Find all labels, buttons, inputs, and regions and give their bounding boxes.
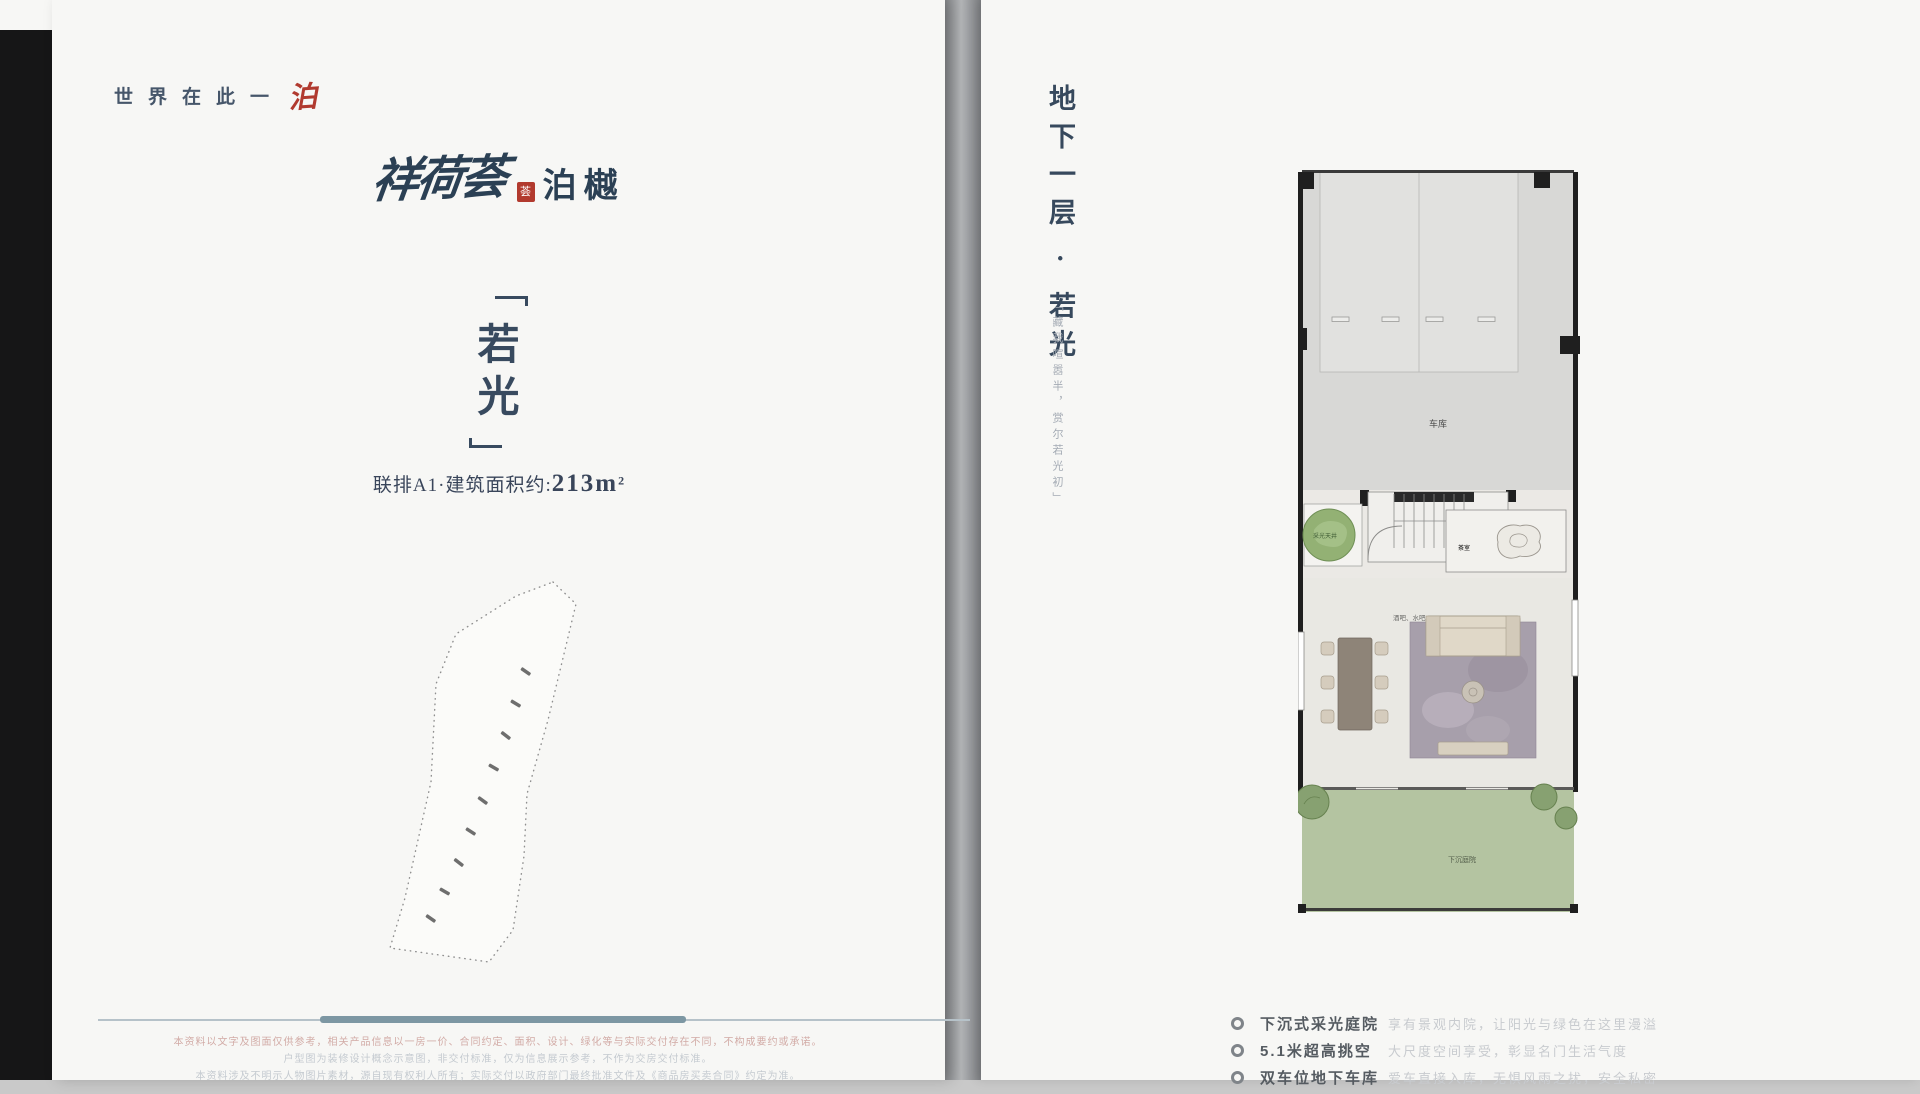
- page-right: 地下一层 · 若光 「藏我喧嚣半，赏尔若光初」: [981, 0, 1920, 1080]
- feature-desc: 享有景观内院，让阳光与绿色在这里漫溢: [1388, 1014, 1658, 1033]
- area-line: 联排A1·建筑面积约:213m2: [52, 470, 945, 498]
- garage-label: 车库: [1429, 418, 1447, 429]
- bullet-circle-icon: [1231, 1044, 1244, 1057]
- corner-bracket-bottom-icon: [469, 438, 502, 448]
- tea-room-label: 茶室: [1458, 544, 1470, 552]
- disclaimer-block: 本资料以文字及图面仅供参考，相关产品信息以一房一价、合同约定、面积、设计、绿化等…: [98, 1034, 898, 1085]
- brand-logo: 祥荷荟 荟 泊樾: [52, 140, 945, 209]
- area-value: 213: [552, 470, 596, 497]
- unit-title-char-2: 光: [477, 372, 519, 424]
- bullet-circle-icon: [1231, 1071, 1244, 1084]
- feature-list: 下沉式采光庭院 享有景观内院，让阳光与绿色在这里漫溢 5.1米超高挑空 大尺度空…: [1231, 1013, 1658, 1094]
- area-unit: m: [595, 470, 618, 497]
- basement-floor-plan: 车库: [1298, 170, 1584, 915]
- slogan-accent-char: 泊: [287, 73, 319, 117]
- disclaimer-line-2: 户型图为装修设计概念示意图，非交付标准，仅为信息展示参考，不作为交房交付标准。: [98, 1051, 898, 1068]
- red-seal-icon: 荟: [517, 182, 535, 202]
- bullet-circle-icon: [1231, 1017, 1244, 1030]
- area-sup: 2: [618, 474, 624, 488]
- slogan-text: 世界在此一: [114, 82, 284, 109]
- tea-room: 茶室: [1446, 510, 1566, 572]
- left-black-strip: [0, 0, 52, 1080]
- unit-title: 若 光: [52, 296, 945, 448]
- planter-label: 采光天井: [1313, 532, 1337, 540]
- feature-row-2: 5.1米超高挑空 大尺度空间享受，彰显名门生活气度: [1231, 1040, 1658, 1060]
- floor-vertical-quote: 「藏我喧嚣半，赏尔若光初」: [1049, 300, 1065, 508]
- feature-desc: 爱车直接入库，无惧风雨之扰，安全私密: [1388, 1068, 1658, 1087]
- logo-project-name: 泊樾: [543, 158, 625, 207]
- feature-desc: 大尺度空间享受，彰显名门生活气度: [1388, 1041, 1628, 1060]
- feature-row-3: 双车位地下车库 爱车直接入库，无惧风雨之扰，安全私密: [1231, 1067, 1658, 1087]
- disclaimer-line-1: 本资料以文字及图面仅供参考，相关产品信息以一房一价、合同约定、面积、设计、绿化等…: [98, 1034, 898, 1051]
- logo-calligraphy: 祥荷荟: [368, 138, 509, 212]
- page-gap: [945, 0, 981, 1080]
- corner-bracket-top-icon: [495, 296, 528, 306]
- light-well-planter: 采光天井: [1303, 504, 1362, 566]
- disclaimer-line-3: 本资料涉及不明示人物图片素材，源自现有权利人所有；实际交付以政府部门最终批准文件…: [98, 1068, 898, 1085]
- feature-row-1: 下沉式采光庭院 享有景观内院，让阳光与绿色在这里漫溢: [1231, 1013, 1658, 1033]
- area-prefix: 联排A1·建筑面积约:: [373, 475, 552, 496]
- feature-title: 下沉式采光庭院: [1260, 1013, 1388, 1034]
- page-left: 世界在此一 泊 祥荷荟 荟 泊樾 若 光 联排A1·建筑面积约:213m2: [52, 0, 945, 1080]
- brochure-spread: 世界在此一 泊 祥荷荟 荟 泊樾 若 光 联排A1·建筑面积约:213m2: [0, 0, 1920, 1080]
- garden-label: 下沉庭院: [1448, 855, 1476, 864]
- feature-title: 5.1米超高挑空: [1260, 1040, 1388, 1061]
- slogan: 世界在此一 泊: [114, 74, 317, 116]
- sofa-set: [1410, 616, 1536, 758]
- site-plan-sketch: [330, 562, 590, 992]
- dining-set: [1321, 638, 1388, 730]
- unit-title-char-1: 若: [477, 320, 519, 372]
- bar-label: 酒吧、水吧: [1393, 613, 1426, 622]
- footer-rule-bar: [320, 1016, 686, 1023]
- feature-title: 双车位地下车库: [1260, 1067, 1388, 1088]
- site-boundary-dotted: [390, 582, 576, 962]
